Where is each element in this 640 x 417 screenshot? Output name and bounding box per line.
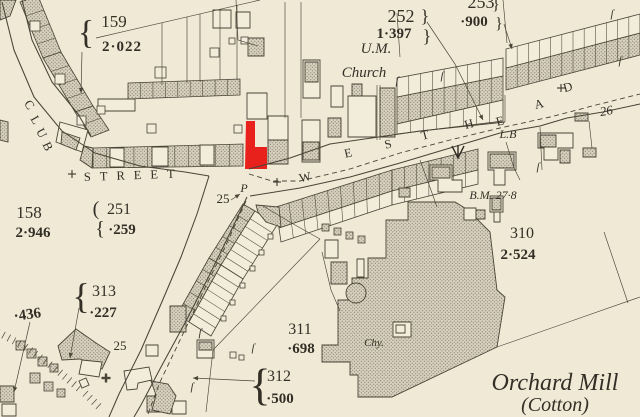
slope-hachure [12,338,16,345]
outbuilding [221,316,226,321]
building [464,208,476,220]
acreage-251-label: ·259 [108,222,136,238]
plot-boundary-line [503,0,507,43]
parcel-158-label: 158 [16,203,42,222]
street-name-club-l: L [27,113,43,127]
building [170,306,186,332]
building [236,12,250,28]
slope-hachure [87,395,92,400]
benchmark-label: B.M. 27·8 [469,188,516,202]
slope-hachure [58,370,63,376]
outbuilding [210,48,219,57]
slope-hachure [83,391,88,396]
building [199,342,212,350]
mill-chimney-flue [396,325,405,333]
parcel-313-label: 313 [92,283,116,300]
building [583,148,596,157]
house-26-label: 26 [599,102,615,119]
acreage-253-label: ·900 [460,14,488,30]
label-brace: { [78,15,94,52]
building [331,86,343,107]
acreage-158-label: 2·946 [15,225,51,241]
slope-hachure [2,332,6,339]
building [152,147,168,166]
building [352,84,362,96]
outbuilding [57,389,65,397]
outbuilding [38,357,47,366]
building [432,167,450,178]
building [213,10,231,28]
leader-arrowhead [235,194,240,199]
ordnance-survey-map: ſſſſſſſſ{}}}}({{{1592·0222521·397253·900… [0,0,640,417]
building [268,116,288,140]
building [305,62,318,82]
parcel-252-label: 252 [388,6,415,26]
tie-mark-icon: ſ [251,342,256,354]
outbuilding [259,250,264,255]
label-brace: { [95,218,105,240]
building [2,404,16,416]
outbuilding [230,352,236,358]
building [540,135,556,147]
building [0,120,8,142]
parcel-159-label: 159 [101,12,127,31]
street-name-club-u: U [33,126,50,141]
plot-boundary-line [604,232,628,303]
outbuilding [147,124,156,133]
building [476,210,485,219]
slope-hachure [67,378,72,384]
building [575,113,588,121]
map-viewport[interactable]: ſſſſſſſſ{}}}}({{{1592·0222521·397253·900… [0,0,640,417]
slope-hachure [76,385,81,391]
outbuilding [30,21,40,31]
letter-box-label: L.B [498,127,517,141]
leader-line [193,378,255,381]
street-name-westhead-e2: E [494,113,505,129]
street-name-club-b: B [40,140,56,153]
parcel-312-label: 312 [267,368,291,385]
label-brace: { [72,276,89,316]
street-name-westhead-e1: E [343,145,354,160]
street-name-westhead-a: A [533,96,545,112]
pump-label: P [239,181,248,195]
leader-arrowhead [193,376,198,380]
um-church-building [348,96,376,137]
outbuilding [30,373,40,383]
parcel-253-label: 253 [468,0,495,12]
acreage-310-label: 2·524 [500,247,536,263]
plot-boundary-line [497,297,640,347]
building [0,386,14,402]
slope-hachure [62,374,67,380]
building [146,345,158,356]
street-name-club-c: C [21,97,37,112]
acreage-311-label: ·698 [287,341,315,357]
outbuilding [346,232,353,239]
street-name-street: STREET [84,167,184,184]
tie-mark-icon: ſ [610,8,615,20]
slope-hachure [96,403,101,408]
building [200,145,214,165]
outbuilding [334,228,341,235]
label-brace: } [495,16,503,33]
circular-tank [346,283,366,303]
building [124,367,152,390]
building [331,262,347,284]
acreage-313-label: ·227 [89,305,117,321]
parcel-310-label: 310 [510,225,534,242]
mill-type-label: (Cotton) [521,394,589,416]
plot-boundary-line [589,121,592,148]
outbuilding [322,224,329,231]
outbuilding [44,382,53,391]
parcel-311-label: 311 [288,321,311,338]
slope-hachure [72,381,77,387]
label-brace: } [423,26,432,46]
street-name-westhead-w: W [298,169,313,185]
outbuilding [155,67,166,78]
slope-hachure [92,399,97,404]
building [328,118,341,137]
slope-hachure [7,335,11,342]
building [268,140,288,164]
building [248,38,264,56]
outbuilding [240,283,245,288]
acreage-312-label: ·500 [266,391,294,407]
label-brace: } [421,6,430,26]
outbuilding [229,38,235,44]
tie-mark-icon: ſ [536,161,541,173]
back-row-terrace [128,79,240,99]
highlighted-parcel-building[interactable] [245,121,267,169]
building [247,93,267,119]
building [560,150,570,163]
church-label: Church [342,65,386,81]
tie-mark-icon: ſ [190,381,195,393]
plot-boundary-line [206,350,213,412]
outbuilding [55,74,65,84]
outbuilding [97,106,105,114]
building [357,259,364,277]
building [380,88,395,137]
outbuilding [250,266,255,271]
building [79,360,102,377]
outbuilding [239,355,244,360]
street-name-westhead-d: D [562,79,575,95]
mill-name-label: Orchard Mill [492,370,619,396]
outbuilding [358,236,365,243]
building [79,378,89,388]
acreage-159-label: 2·022 [102,39,142,55]
house-25b-label: 25 [114,338,127,353]
street-name-westhead-s: S [383,136,393,151]
club-row-upper [20,0,61,58]
building [494,212,500,222]
building [399,188,410,197]
parcel-251-label: 251 [107,201,131,218]
outbuilding [268,234,273,239]
chimney-label: Chy. [364,337,384,349]
acreage-252-label: 1·397 [376,26,412,42]
house-25-label: 25 [217,191,230,206]
church-label-um: U.M. [361,41,392,57]
outbuilding [230,300,235,305]
outbuilding [234,125,242,133]
building [325,240,338,258]
acreage-436-label: ·436 [13,305,43,325]
label-brace: ( [93,198,100,220]
